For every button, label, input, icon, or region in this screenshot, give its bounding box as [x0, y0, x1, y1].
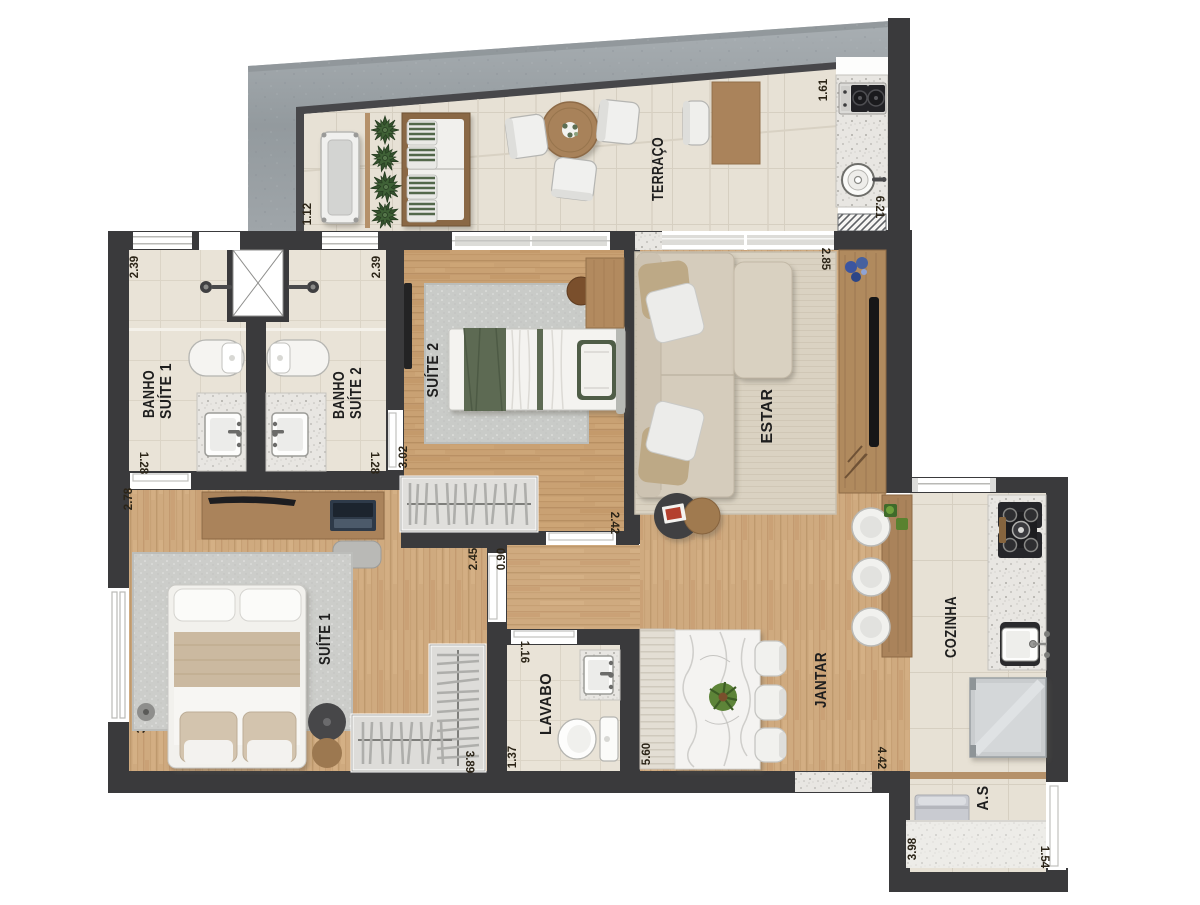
svg-text:1.16: 1.16	[518, 641, 530, 663]
svg-text:2.45: 2.45	[468, 547, 480, 570]
svg-text:ESTAR: ESTAR	[759, 389, 776, 444]
svg-text:A.S: A.S	[975, 786, 992, 811]
svg-text:SUÍTE 1: SUÍTE 1	[156, 363, 175, 419]
svg-text:JANTAR: JANTAR	[813, 652, 830, 708]
svg-text:1.28: 1.28	[368, 452, 380, 475]
svg-text:6.21: 6.21	[873, 196, 885, 219]
svg-text:TERRAÇO: TERRAÇO	[650, 137, 667, 201]
svg-text:3.98: 3.98	[907, 837, 919, 860]
svg-text:4.42: 4.42	[875, 747, 887, 769]
svg-text:BANHO: BANHO	[331, 371, 348, 419]
svg-text:0.90: 0.90	[496, 548, 508, 570]
svg-text:1.28: 1.28	[137, 452, 149, 475]
svg-text:2.85: 2.85	[819, 248, 831, 271]
svg-text:1.54: 1.54	[1038, 846, 1050, 869]
svg-text:1.12: 1.12	[302, 203, 314, 225]
svg-text:LAVABO: LAVABO	[538, 673, 555, 735]
svg-text:SUÍTE 1: SUÍTE 1	[315, 613, 334, 665]
svg-text:1.37: 1.37	[507, 746, 519, 768]
svg-text:3.89: 3.89	[463, 751, 475, 773]
svg-text:SUÍTE 2: SUÍTE 2	[423, 343, 442, 398]
svg-text:2.42: 2.42	[608, 512, 620, 534]
svg-text:BANHO: BANHO	[141, 370, 158, 418]
svg-text:2.39: 2.39	[129, 256, 141, 278]
svg-text:SUÍTE 2: SUÍTE 2	[346, 367, 365, 419]
svg-text:2.78: 2.78	[123, 487, 135, 510]
svg-text:3.02: 3.02	[398, 446, 410, 468]
svg-text:1.61: 1.61	[818, 78, 830, 101]
svg-text:COZINHA: COZINHA	[943, 596, 960, 658]
svg-text:2.39: 2.39	[371, 256, 383, 278]
svg-text:5.60: 5.60	[641, 743, 653, 765]
